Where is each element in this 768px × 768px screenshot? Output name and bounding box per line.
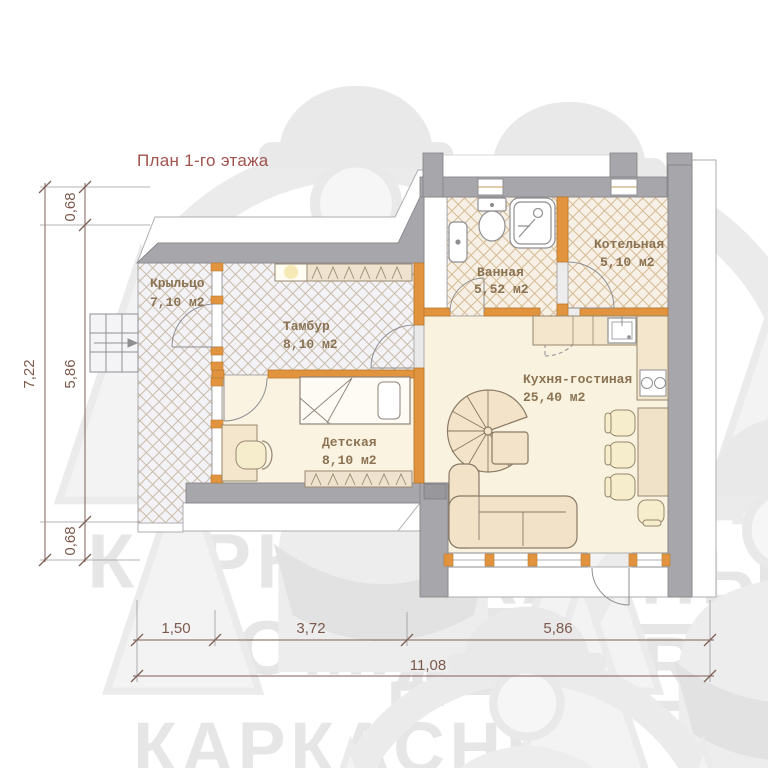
spiral-post <box>484 427 492 435</box>
dim-bottom-seg1: 1,50 <box>161 620 190 637</box>
wall-tambur-kitchen-a <box>414 263 424 325</box>
chair-back <box>605 445 611 465</box>
shower-drain <box>534 209 543 218</box>
chair <box>609 410 635 436</box>
label-boiler-area: 5,10 м2 <box>600 255 655 270</box>
sofa-seat <box>449 496 577 548</box>
bottom-windows <box>444 553 670 567</box>
wall-bath-kitchen-b <box>484 308 540 316</box>
wall-right <box>668 165 692 597</box>
label-bathroom-area: 5,52 м2 <box>474 282 529 297</box>
wall-top <box>420 177 692 197</box>
chair-back <box>605 413 611 433</box>
floor-plan-svg: КАРКАСНЫЕ ДОМА RU <box>0 0 768 768</box>
label-tambur-area: 8,10 м2 <box>283 337 338 352</box>
toilet-bowl <box>479 211 505 241</box>
sink-drain <box>456 240 460 244</box>
dim-left-seg2: 5,86 <box>62 359 79 388</box>
dining-table <box>638 408 668 496</box>
wall-bath-boiler <box>557 197 568 262</box>
sink-drain <box>627 335 631 339</box>
label-bathroom-name: Ванная <box>477 265 524 280</box>
desk-chair <box>236 441 266 469</box>
label-kitchen-name: Кухня-гостиная <box>523 372 632 387</box>
label-tambur-name: Тамбур <box>283 319 330 334</box>
chair-back <box>643 520 661 526</box>
wall-tambur-kitchen-b <box>414 368 424 483</box>
lamp-glow <box>284 265 298 279</box>
dim-bottom-total: 11,08 <box>410 657 446 674</box>
floor-plan-page: КАРКАСНЫЕ ДОМА RU <box>0 0 768 768</box>
dim-bottom-seg2: 3,72 <box>296 620 325 637</box>
roof-band-porch <box>138 523 183 532</box>
tv-unit <box>424 484 446 499</box>
roof-band-bottom-left <box>183 503 420 531</box>
dim-bottom-seg3: 5,86 <box>543 620 572 637</box>
toilet-button <box>491 204 494 207</box>
dim-left-seg1: 0,68 <box>62 192 79 221</box>
chair <box>609 474 635 500</box>
chair <box>609 442 635 468</box>
label-kitchen-area: 25,40 м2 <box>523 390 586 405</box>
roof-band-bottom <box>448 567 692 597</box>
room-boiler-floor <box>568 197 668 308</box>
page-title: План 1-го этажа <box>137 151 269 170</box>
wall-stub-1 <box>423 153 443 197</box>
dim-left-seg3: 0,68 <box>62 526 79 555</box>
dim-left-total: 7,22 <box>21 359 38 388</box>
shower-tray <box>514 202 551 244</box>
chair-back <box>605 477 611 497</box>
wall-bath-kitchen-a <box>424 308 450 316</box>
wall-boiler-kitchen <box>580 308 668 316</box>
label-boiler-name: Котельная <box>594 237 664 252</box>
pillow <box>378 382 400 419</box>
wall-bath-boiler-stub <box>557 304 568 316</box>
wardrobe-tambur <box>307 264 412 281</box>
duct-strip <box>424 197 447 316</box>
frame-wall-children <box>212 378 222 483</box>
entry-steps <box>90 314 138 372</box>
label-porch-area: 7,10 м2 <box>150 295 205 310</box>
wall-tambur-children-a <box>212 370 224 378</box>
label-children-area: 8,10 м2 <box>322 453 377 468</box>
wall-stub-2 <box>610 153 637 177</box>
label-children-name: Детская <box>322 435 377 450</box>
roof-band-right <box>692 160 716 597</box>
wall-pier-left <box>420 483 448 597</box>
upper-terrace-outline <box>443 155 610 177</box>
spiral-landing <box>492 432 528 464</box>
label-porch-name: Крыльцо <box>150 276 205 291</box>
